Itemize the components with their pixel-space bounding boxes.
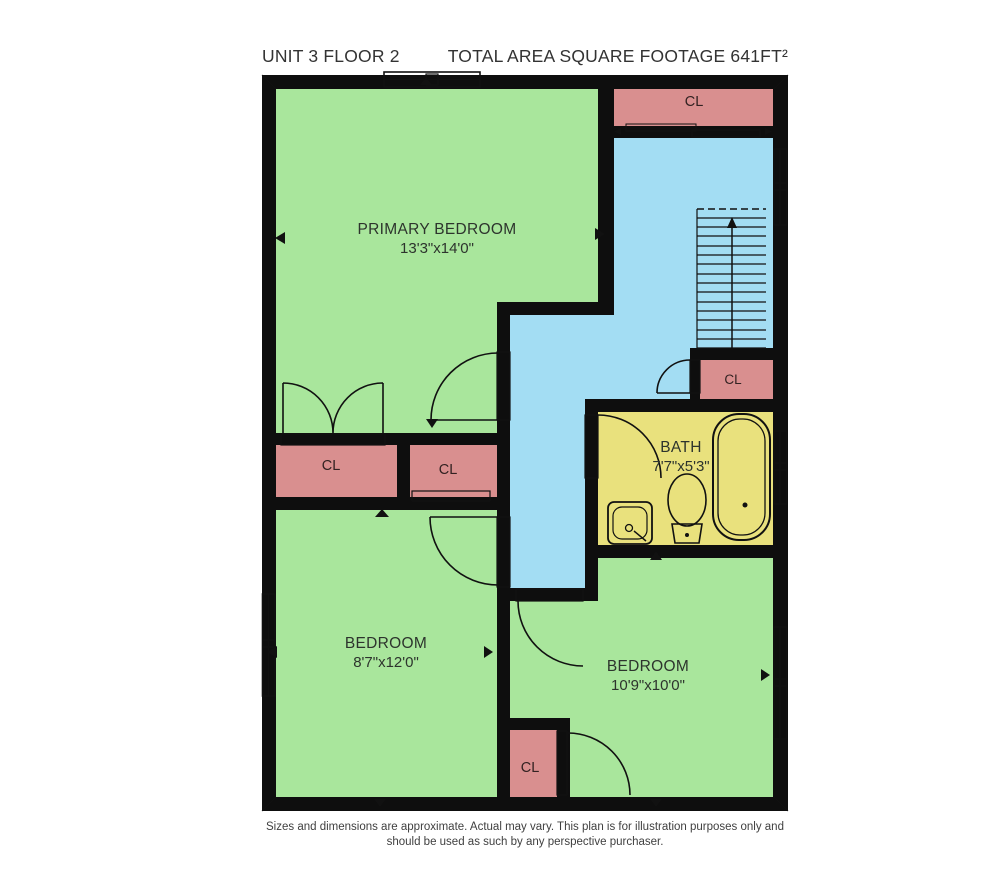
closet-bottom: [510, 730, 557, 797]
disclaimer: Sizes and dimensions are approximate. Ac…: [262, 820, 788, 850]
hallway: [510, 315, 614, 399]
hallway: [614, 352, 690, 399]
room-bedroom-left: [276, 510, 497, 797]
closet-top-right: [614, 89, 773, 126]
floor-plan-drawing: [0, 0, 1000, 886]
disclaimer-line-1: Sizes and dimensions are approximate. Ac…: [262, 820, 788, 835]
room-primary-bedroom: [276, 302, 497, 433]
hallway: [510, 399, 585, 588]
room-primary-bedroom: [276, 89, 598, 302]
closet-hall: [700, 360, 773, 399]
room-bedroom-right: [598, 558, 773, 797]
hallway: [614, 138, 690, 352]
floor-plan-page: UNIT 3 FLOOR 2 TOTAL AREA SQUARE FOOTAGE…: [0, 0, 1000, 886]
room-bath: [598, 412, 773, 545]
closet-mid-left: [276, 445, 397, 497]
closet-mid-right: [410, 445, 497, 497]
disclaimer-line-2: should be used as such by any perspectiv…: [262, 835, 788, 850]
